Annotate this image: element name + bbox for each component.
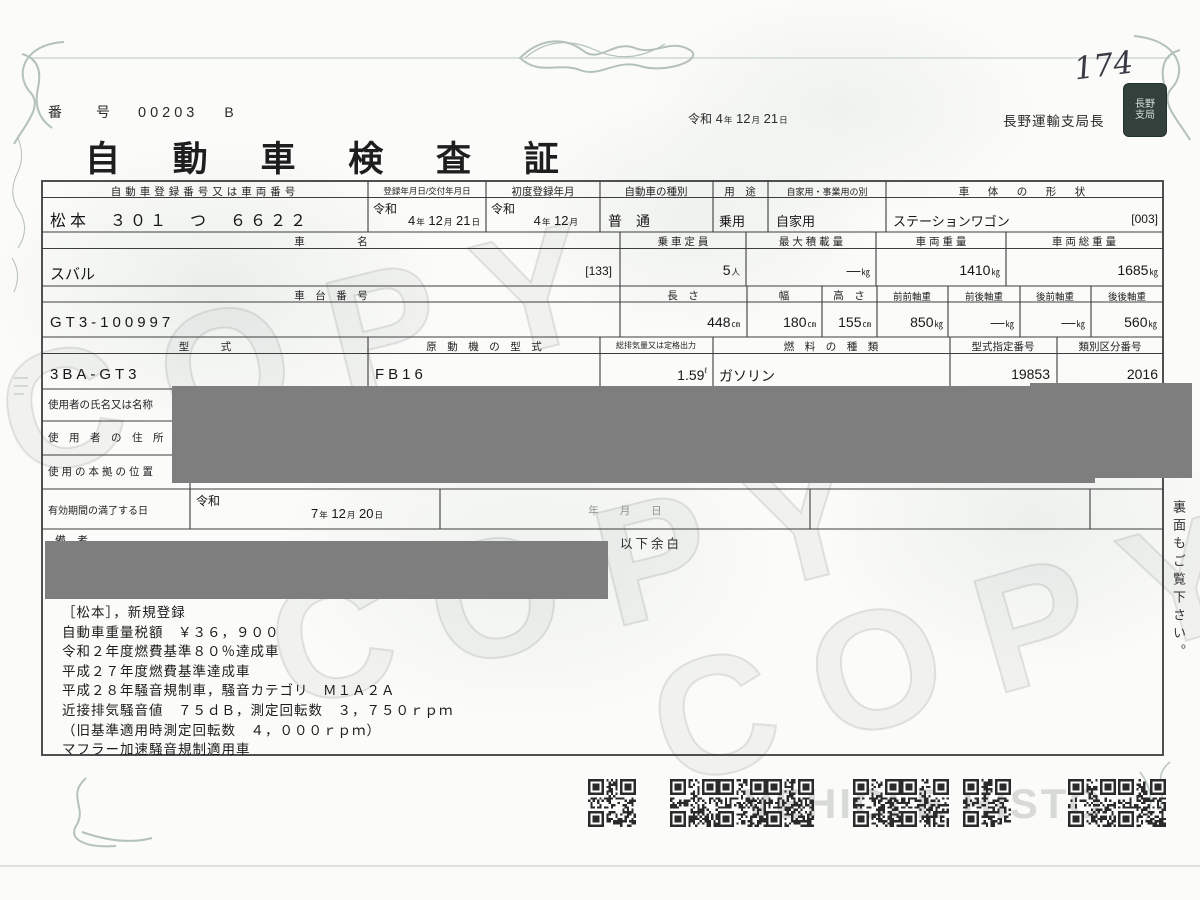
engine-model-value: FB16 <box>375 366 427 383</box>
gross-weight-value: 1685㎏ <box>1054 262 1158 278</box>
header-width: 幅 <box>779 288 790 303</box>
first-registration-value: 4年 12月 <box>488 213 578 228</box>
header-seating-capacity: 乗 車 定 員 <box>658 234 709 249</box>
registration-number-value: 松本 ３０１ つ ６６２２ <box>50 207 310 231</box>
axle-rear-front-value: ―㎏ <box>1024 314 1085 330</box>
axle-front-rear-value: ―㎏ <box>952 314 1014 330</box>
displacement-value: 1.59ℓ <box>620 366 708 383</box>
bottom-left-ornament <box>46 768 206 858</box>
header-vehicle-kind: 自動車の種別 <box>625 184 688 199</box>
redaction-box-user-info <box>172 386 1095 483</box>
qr-code <box>670 779 718 827</box>
remarks-line: 平成２８年騒音規制車，騒音カテゴリ Ｍ１Ａ２Ａ <box>62 681 454 701</box>
max-load-value: ―㎏ <box>770 262 870 278</box>
seal-text: 支局 <box>1135 110 1155 121</box>
chassis-number-value: GT3-100997 <box>50 314 174 331</box>
blank-below-note: 以下余白 <box>620 533 682 552</box>
header-first-registration: 初度登録年月 <box>512 184 575 199</box>
bottom-border-line <box>0 860 1200 880</box>
header-length: 長 さ <box>667 288 699 303</box>
header-base-location: 使用の本拠の位置 <box>48 464 156 479</box>
unit-year: 年 <box>724 115 733 125</box>
seating-capacity-value: 5人 <box>640 262 740 278</box>
qr-code <box>853 779 901 827</box>
qr-code <box>1068 779 1116 827</box>
header-displacement: 総排気量又は定格出力 <box>616 340 696 351</box>
issue-era: 令和 <box>688 112 712 126</box>
unit-day: 日 <box>779 115 788 125</box>
qr-code <box>588 779 636 827</box>
private-business-value: 自家用 <box>776 211 815 230</box>
document-number-label: 番 号 <box>48 102 120 122</box>
redaction-box-remarks <box>45 541 608 599</box>
expiry-date-placeholder: 年 月 日 <box>440 503 810 518</box>
header-model: 型 式 <box>179 339 232 354</box>
header-height: 高 さ <box>833 288 865 303</box>
document-number: 番 号 00203 B <box>48 102 234 122</box>
fuel-type-value: ガソリン <box>719 366 775 386</box>
registration-date-value: 4年 12月 21日 <box>370 213 480 228</box>
header-user-address: 使 用 者 の 住 所 <box>48 430 164 445</box>
document-number-value: 00203 <box>138 105 198 121</box>
header-gross-weight: 車 両 総 重 量 <box>1052 234 1116 249</box>
header-user-name: 使用者の氏名又は名称 <box>48 397 153 412</box>
unit-month: 月 <box>751 115 760 125</box>
header-max-load: 最 大 積 載 量 <box>779 234 843 249</box>
header-use: 用 途 <box>724 184 756 199</box>
issue-year: 4 <box>716 111 723 126</box>
remarks-line: 近接排気騒音値 ７５ｄＢ，測定回転数 ３，７５０ｒｐｍ <box>62 701 454 721</box>
height-value: 155㎝ <box>802 314 871 330</box>
remarks-line: マフラー加速騒音規制適用車 <box>62 740 454 760</box>
remarks-line: （旧基準適用時測定回転数 ４，０００ｒｐｍ） <box>62 721 454 741</box>
header-axle-front-front: 前前軸重 <box>893 289 931 303</box>
model-value: 3BA-GT3 <box>50 366 141 383</box>
certificate-title: 自 動 車 検 査 証 <box>85 131 581 182</box>
remarks-text: ［松本］，新規登録 自動車重量税額 ￥３６，９００ 令和２年度燃費基準８０％達成… <box>62 603 454 760</box>
classification-number-value: 2016 <box>1070 366 1158 382</box>
header-vehicle-weight: 車 両 重 量 <box>916 234 967 249</box>
remarks-line: 自動車重量税額 ￥３６，９００ <box>62 623 454 643</box>
qr-code <box>766 779 814 827</box>
header-axle-front-rear: 前後軸重 <box>965 289 1003 303</box>
issue-month: 12 <box>736 111 750 126</box>
qr-code <box>963 779 1011 827</box>
remarks-line: 令和２年度燃費基準８０％達成車 <box>62 642 454 662</box>
header-registration-number: 自動車登録番号又は車両番号 <box>111 184 300 199</box>
header-engine-model: 原 動 機 の 型 式 <box>426 339 542 354</box>
handwritten-page-number: 174 <box>1072 45 1135 88</box>
qr-code <box>718 779 766 827</box>
expiry-date-value: 7年 12月 20日 <box>228 506 383 521</box>
remarks-line: ［松本］，新規登録 <box>62 603 454 623</box>
issuing-authority: 長野運輸支局長 <box>1003 110 1105 130</box>
header-axle-rear-front: 後前軸重 <box>1036 289 1074 303</box>
body-shape-code: [003] <box>1090 212 1158 226</box>
vehicle-kind-value: 普 通 <box>608 211 650 231</box>
issue-date: 令和 4年 12月 21日 <box>688 110 788 127</box>
header-fuel-type: 燃 料 の 種 類 <box>784 339 879 354</box>
vehicle-name-code: [133] <box>540 264 612 278</box>
margin-scribble <box>2 128 38 408</box>
top-border-ornament <box>0 26 1200 106</box>
header-private-business: 自家用・事業用の別 <box>786 185 867 198</box>
axle-front-front-value: 850㎏ <box>880 314 943 330</box>
header-chassis-number: 車 台 番 号 <box>294 288 368 303</box>
issue-day: 21 <box>764 111 778 126</box>
header-axle-rear-rear: 後後軸重 <box>1108 289 1146 303</box>
official-seal: 長野 支局 <box>1124 84 1166 136</box>
header-vehicle-name: 車 名 <box>294 234 368 249</box>
redaction-box-user-info <box>1030 383 1192 478</box>
vehicle-weight-value: 1410㎏ <box>898 262 1000 278</box>
seal-text: 長野 <box>1135 99 1155 110</box>
body-shape-value: ステーションワゴン <box>893 211 1010 230</box>
see-reverse-side-note: 裏面もご覧下さい。 <box>1169 500 1188 662</box>
vehicle-inspection-certificate: COPY COPY COPY 番 号 00203 B 自 動 車 検 査 証 令… <box>0 0 1200 900</box>
remarks-line: 平成２７年度燃費基準達成車 <box>62 662 454 682</box>
header-registration-date: 登録年月日/交付年月日 <box>383 185 470 197</box>
expiry-era: 令和 <box>196 492 220 509</box>
header-expiry-date: 有効期間の満了する日 <box>48 502 148 517</box>
use-value: 乗用 <box>719 211 745 230</box>
header-classification-number: 類別区分番号 <box>1079 339 1142 354</box>
qr-code <box>1118 779 1166 827</box>
document-number-suffix: B <box>224 104 233 120</box>
axle-rear-rear-value: 560㎏ <box>1095 314 1157 330</box>
top-left-corner-ornament <box>4 34 84 154</box>
header-body-shape: 車 体 の 形 状 <box>959 184 1090 199</box>
qr-code <box>901 779 949 827</box>
header-type-designation-number: 型式指定番号 <box>972 339 1035 354</box>
vehicle-name-value: スバル <box>50 263 95 284</box>
length-value: 448㎝ <box>650 314 740 330</box>
type-designation-number-value: 19853 <box>960 366 1050 382</box>
